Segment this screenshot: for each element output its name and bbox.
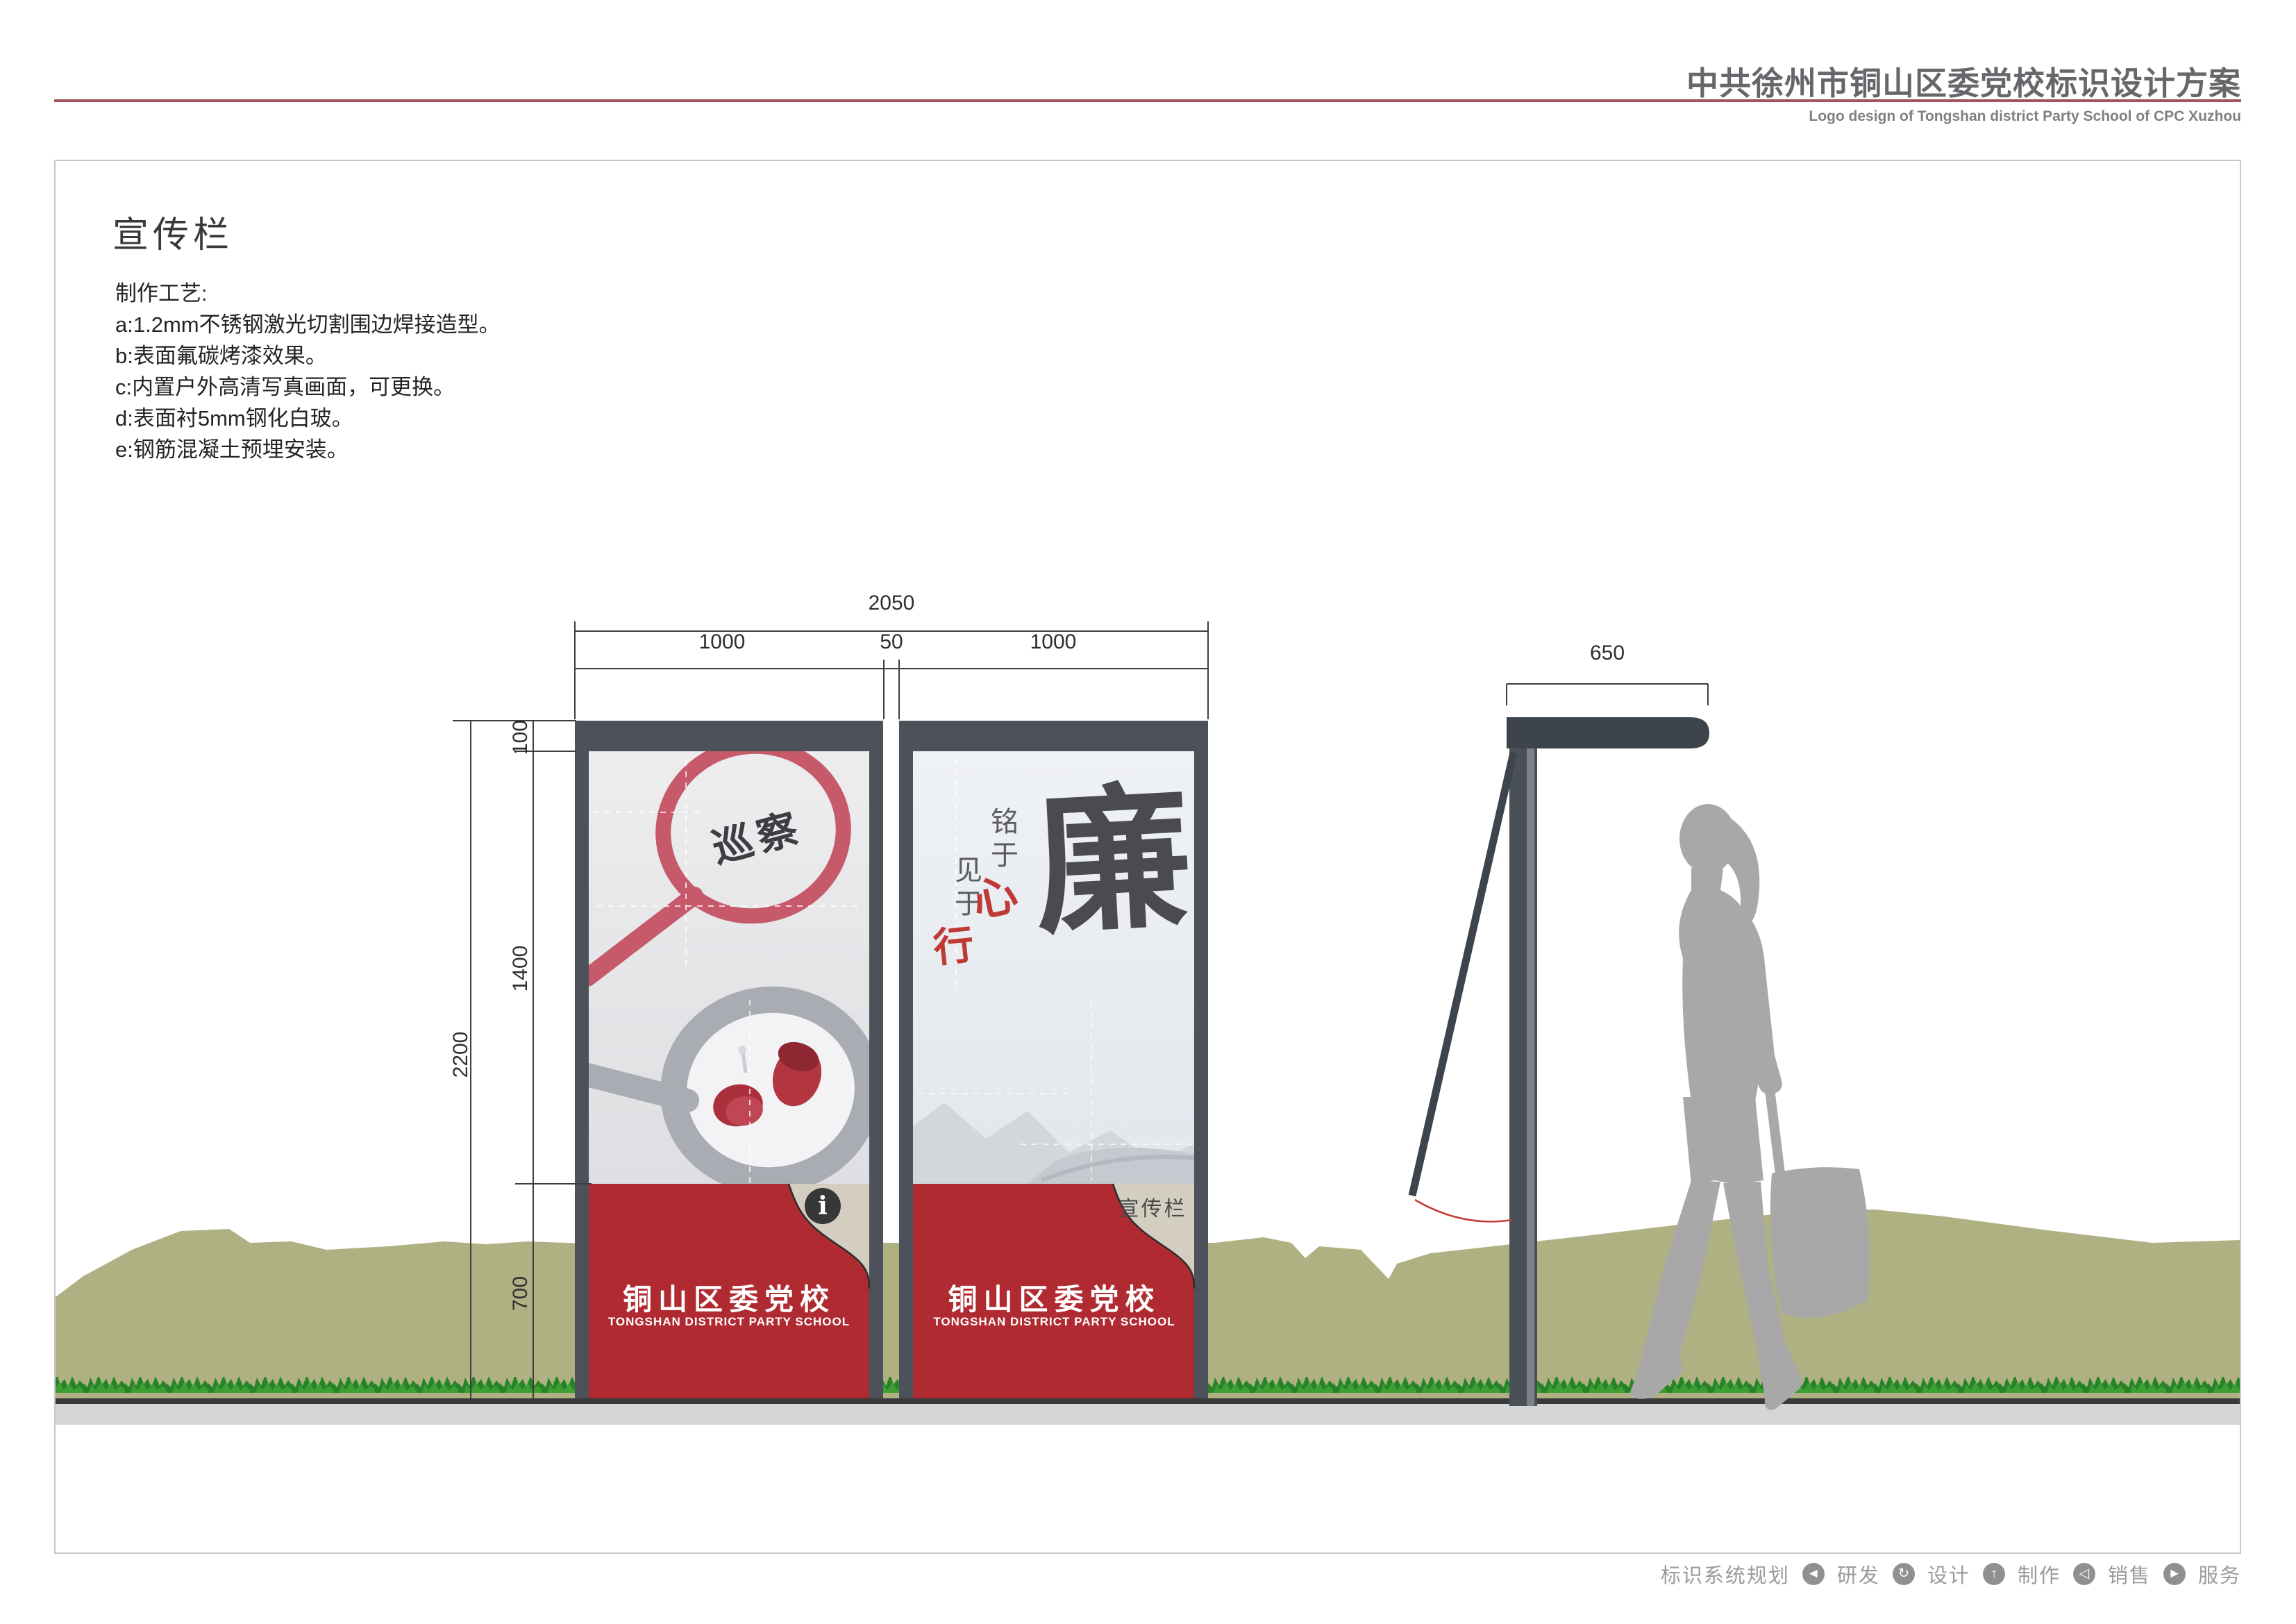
left-arrow-icon: ◄ [1802, 1563, 1825, 1585]
info-icon: i [805, 1188, 841, 1224]
corner-tab-label: 宣传栏 [1109, 1191, 1196, 1222]
dim-base-height: 700 [509, 1264, 533, 1323]
footer-label: 服务 [2198, 1559, 2241, 1589]
header-rule [54, 99, 2241, 102]
process-item: a:1.2mm不锈钢激光切割围边焊接造型。 [115, 309, 501, 340]
poster-right-xing: 行 [930, 912, 976, 974]
up-arrow-icon: ↑ [1983, 1563, 2005, 1585]
refresh-arrow-icon: ↻ [1893, 1563, 1915, 1585]
dim-total-height: 2200 [449, 1026, 473, 1084]
process-item: c:内置户外高清写真画面，可更换。 [115, 371, 501, 403]
process-item: d:表面衬5mm钢化白玻。 [115, 403, 501, 434]
dim-panel-left-width: 1000 [673, 630, 771, 654]
dim-poster-height: 1400 [509, 939, 533, 998]
dim-gap-width: 50 [865, 630, 918, 654]
page-header-subtitle: Logo design of Tongshan district Party S… [1809, 108, 2241, 125]
footer-label: 销售 [2108, 1559, 2151, 1589]
base-title-en: TONGSHAN DISTRICT PARTY SCHOOL [589, 1315, 869, 1329]
base-title-cn: 铜山区委党校 [589, 1276, 869, 1319]
process-notes: 制作工艺: a:1.2mm不锈钢激光切割围边焊接造型。 b:表面氟碳烤漆效果。 … [115, 278, 501, 465]
process-item: b:表面氟碳烤漆效果。 [115, 340, 501, 371]
base-title-cn: 铜山区委党校 [914, 1276, 1195, 1319]
footer-label: 设计 [1927, 1559, 1970, 1589]
left-triangle-icon: ◁ [2073, 1563, 2095, 1585]
footer-label: 标识系统规划 [1661, 1559, 1790, 1589]
dim-cap-height: 100 [509, 708, 533, 767]
page-header-title: 中共徐州市铜山区委党校标识设计方案 [1686, 58, 2241, 104]
base-title-en: TONGSHAN DISTRICT PARTY SCHOOL [914, 1315, 1195, 1329]
dim-panel-right-width: 1000 [1005, 630, 1102, 654]
poster-right-lian: 廉 [1030, 779, 1194, 943]
right-arrow-icon: ► [2163, 1563, 2186, 1585]
footer-label: 制作 [2018, 1559, 2061, 1589]
footer-label: 研发 [1837, 1559, 1880, 1589]
section-title: 宣传栏 [112, 206, 233, 258]
dim-total-width: 2050 [843, 592, 940, 615]
footer-service-chain: 标识系统规划 ◄ 研发 ↻ 设计 ↑ 制作 ◁ 销售 ► 服务 [1661, 1559, 2241, 1589]
process-heading: 制作工艺: [115, 278, 501, 309]
design-sheet: 中共徐州市铜山区委党校标识设计方案 Logo design of Tongsha… [0, 0, 2296, 1624]
dim-side-depth: 650 [1559, 642, 1656, 665]
process-item: e:钢筋混凝土预埋安装。 [115, 434, 501, 465]
